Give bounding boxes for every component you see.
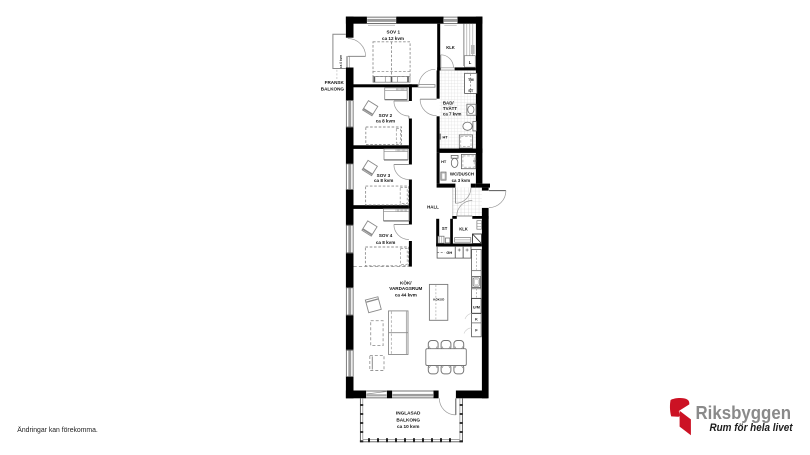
svg-text:INGLASAD: INGLASAD <box>396 410 421 415</box>
svg-text:ca 12 kvm: ca 12 kvm <box>382 36 404 41</box>
svg-text:KLK: KLK <box>446 45 455 50</box>
svg-text:ca 0 kvm: ca 0 kvm <box>339 55 343 69</box>
svg-text:Rum för hela livet: Rum för hela livet <box>710 422 794 434</box>
svg-text:TVÄTT: TVÄTT <box>443 106 457 111</box>
svg-text:BAD/: BAD/ <box>443 101 455 106</box>
svg-text:SOV 4: SOV 4 <box>379 233 393 238</box>
svg-text:ca 8 kvm: ca 8 kvm <box>376 240 395 245</box>
svg-text:KÖK/: KÖK/ <box>400 279 412 285</box>
svg-text:TM: TM <box>468 77 474 82</box>
svg-text:ca 3 kvm: ca 3 kvm <box>452 178 471 183</box>
svg-text:BALKONG: BALKONG <box>396 417 420 422</box>
svg-text:HT: HT <box>441 159 447 164</box>
svg-text:Ändringar kan förekomma.: Ändringar kan förekomma. <box>17 425 98 434</box>
svg-text:GH: GH <box>446 250 452 255</box>
svg-text:KLK: KLK <box>459 227 468 232</box>
svg-text:ca 7 kvm: ca 7 kvm <box>443 112 462 117</box>
svg-text:ca 8 kvm: ca 8 kvm <box>376 118 395 123</box>
svg-text:ca 10 kvm: ca 10 kvm <box>397 424 419 429</box>
svg-text:BALKONG: BALKONG <box>321 86 345 91</box>
svg-text:ca 8 kvm: ca 8 kvm <box>374 178 393 183</box>
svg-text:SOV 2: SOV 2 <box>379 113 393 118</box>
svg-text:U/M: U/M <box>473 305 480 309</box>
svg-text:FRANSK: FRANSK <box>325 80 345 85</box>
svg-text:SOV 1: SOV 1 <box>387 30 401 35</box>
svg-text:K: K <box>475 316 478 321</box>
svg-text:ca 44 kvm: ca 44 kvm <box>395 292 417 297</box>
svg-text:HT: HT <box>443 134 449 139</box>
svg-text:WC/DUSCH: WC/DUSCH <box>450 172 474 177</box>
svg-text:KÖKSÖ: KÖKSÖ <box>433 297 445 302</box>
svg-text:L: L <box>469 60 472 65</box>
svg-text:VARDAGSRUM: VARDAGSRUM <box>389 286 422 291</box>
svg-text:ST: ST <box>442 226 448 231</box>
svg-text:HALL: HALL <box>427 204 439 209</box>
svg-text:Riksbyggen: Riksbyggen <box>696 402 792 423</box>
svg-text:ST: ST <box>468 88 474 93</box>
